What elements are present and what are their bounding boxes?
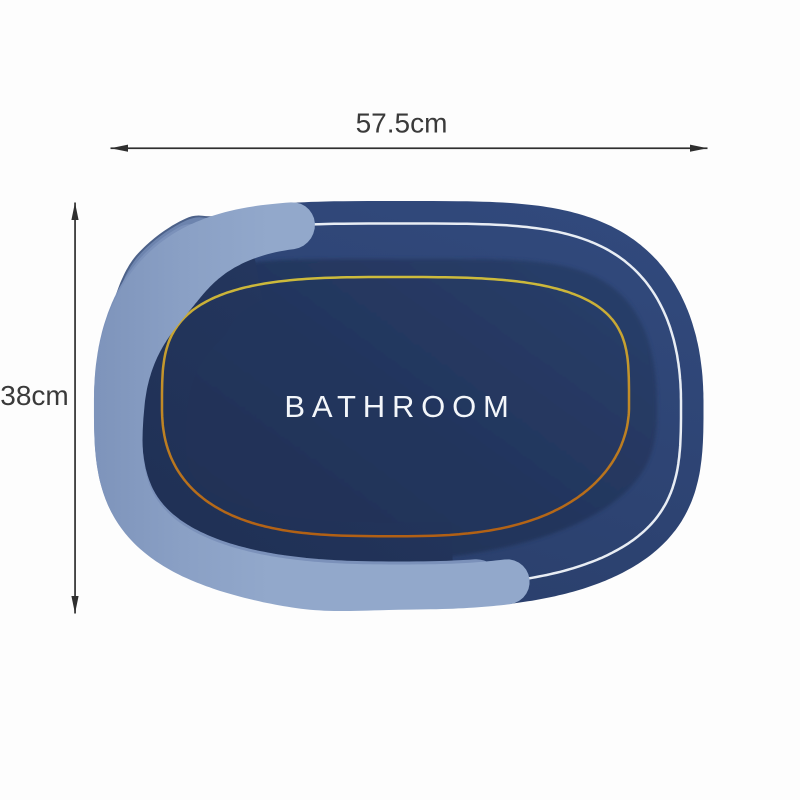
svg-text:BATHROOM: BATHROOM: [284, 389, 515, 424]
svg-text:38cm: 38cm: [0, 380, 68, 411]
svg-text:57.5cm: 57.5cm: [356, 108, 448, 139]
